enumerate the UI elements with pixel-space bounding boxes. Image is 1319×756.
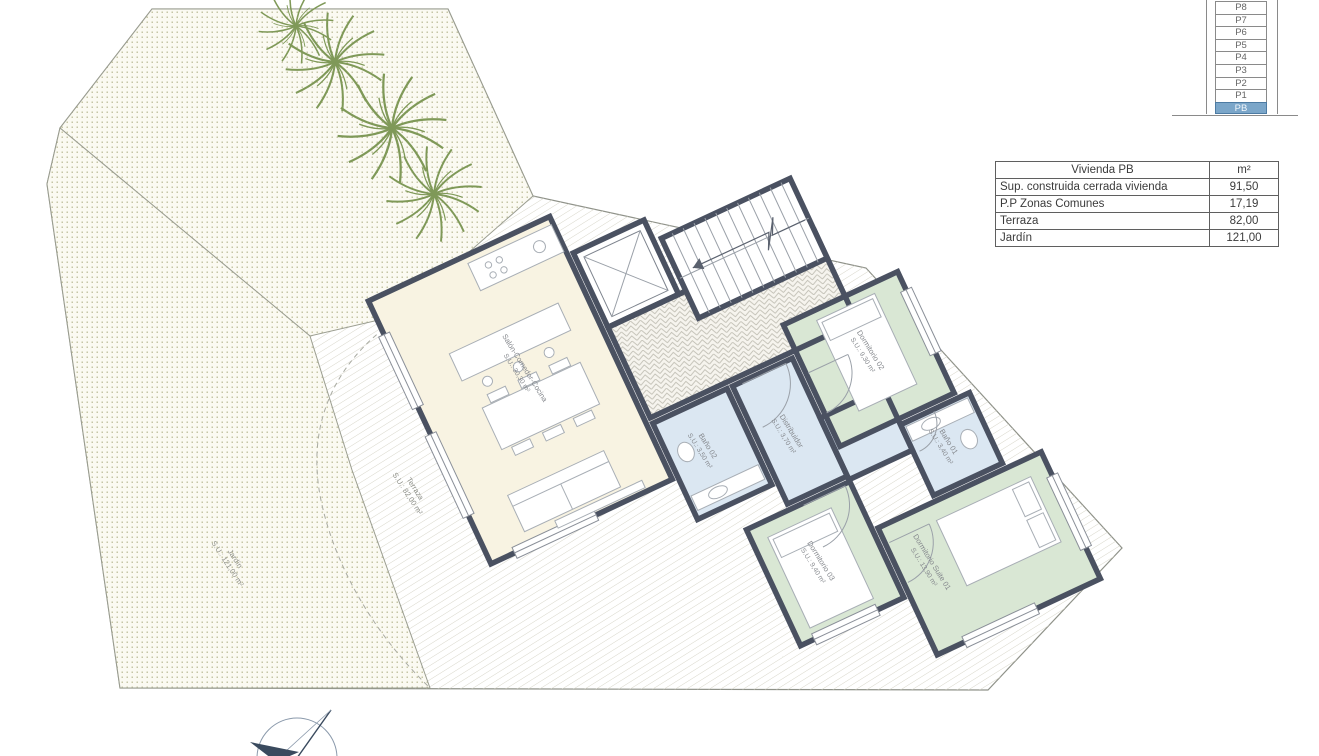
- floor-row-p4[interactable]: P4: [1215, 51, 1267, 64]
- row-value: 121,00: [1210, 230, 1279, 247]
- floor-row-p5[interactable]: P5: [1215, 39, 1267, 52]
- table-unit-header: m²: [1210, 162, 1279, 179]
- row-label: Sup. construida cerrada vivienda: [996, 179, 1210, 196]
- row-label: Terraza: [996, 213, 1210, 230]
- floor-row-p7[interactable]: P7: [1215, 14, 1267, 27]
- ground-line: [1172, 115, 1298, 116]
- floor-row-pb-selected[interactable]: PB: [1215, 102, 1267, 115]
- floor-row-p2[interactable]: P2: [1215, 77, 1267, 90]
- stack-outer-line-left: [1206, 0, 1207, 114]
- table-row: P.P Zonas Comunes 17,19: [996, 196, 1279, 213]
- stack-outer-line-right: [1277, 0, 1278, 114]
- table-title: Vivienda PB: [996, 162, 1210, 179]
- north-compass: [250, 710, 337, 756]
- surface-area-table: Vivienda PB m² Sup. construida cerrada v…: [995, 161, 1279, 247]
- row-label: P.P Zonas Comunes: [996, 196, 1210, 213]
- floor-plan-page: { "floor_selector": { "selected": "PB", …: [0, 0, 1319, 756]
- row-value: 82,00: [1210, 213, 1279, 230]
- floor-row-p6[interactable]: P6: [1215, 26, 1267, 39]
- row-label: Jardín: [996, 230, 1210, 247]
- table-row: Jardín 121,00: [996, 230, 1279, 247]
- row-value: 91,50: [1210, 179, 1279, 196]
- floor-selector: P8 P7 P6 P5 P4 P3 P2 P1 PB: [1215, 1, 1267, 114]
- floor-row-p8[interactable]: P8: [1215, 1, 1267, 14]
- floor-row-p1[interactable]: P1: [1215, 89, 1267, 102]
- floor-row-p3[interactable]: P3: [1215, 64, 1267, 77]
- table-row: Sup. construida cerrada vivienda 91,50: [996, 179, 1279, 196]
- row-value: 17,19: [1210, 196, 1279, 213]
- table-row: Terraza 82,00: [996, 213, 1279, 230]
- site-plan-canvas: Salón-Comedor-Cocina S.U.: 30,30 m² Dorm…: [0, 0, 1319, 756]
